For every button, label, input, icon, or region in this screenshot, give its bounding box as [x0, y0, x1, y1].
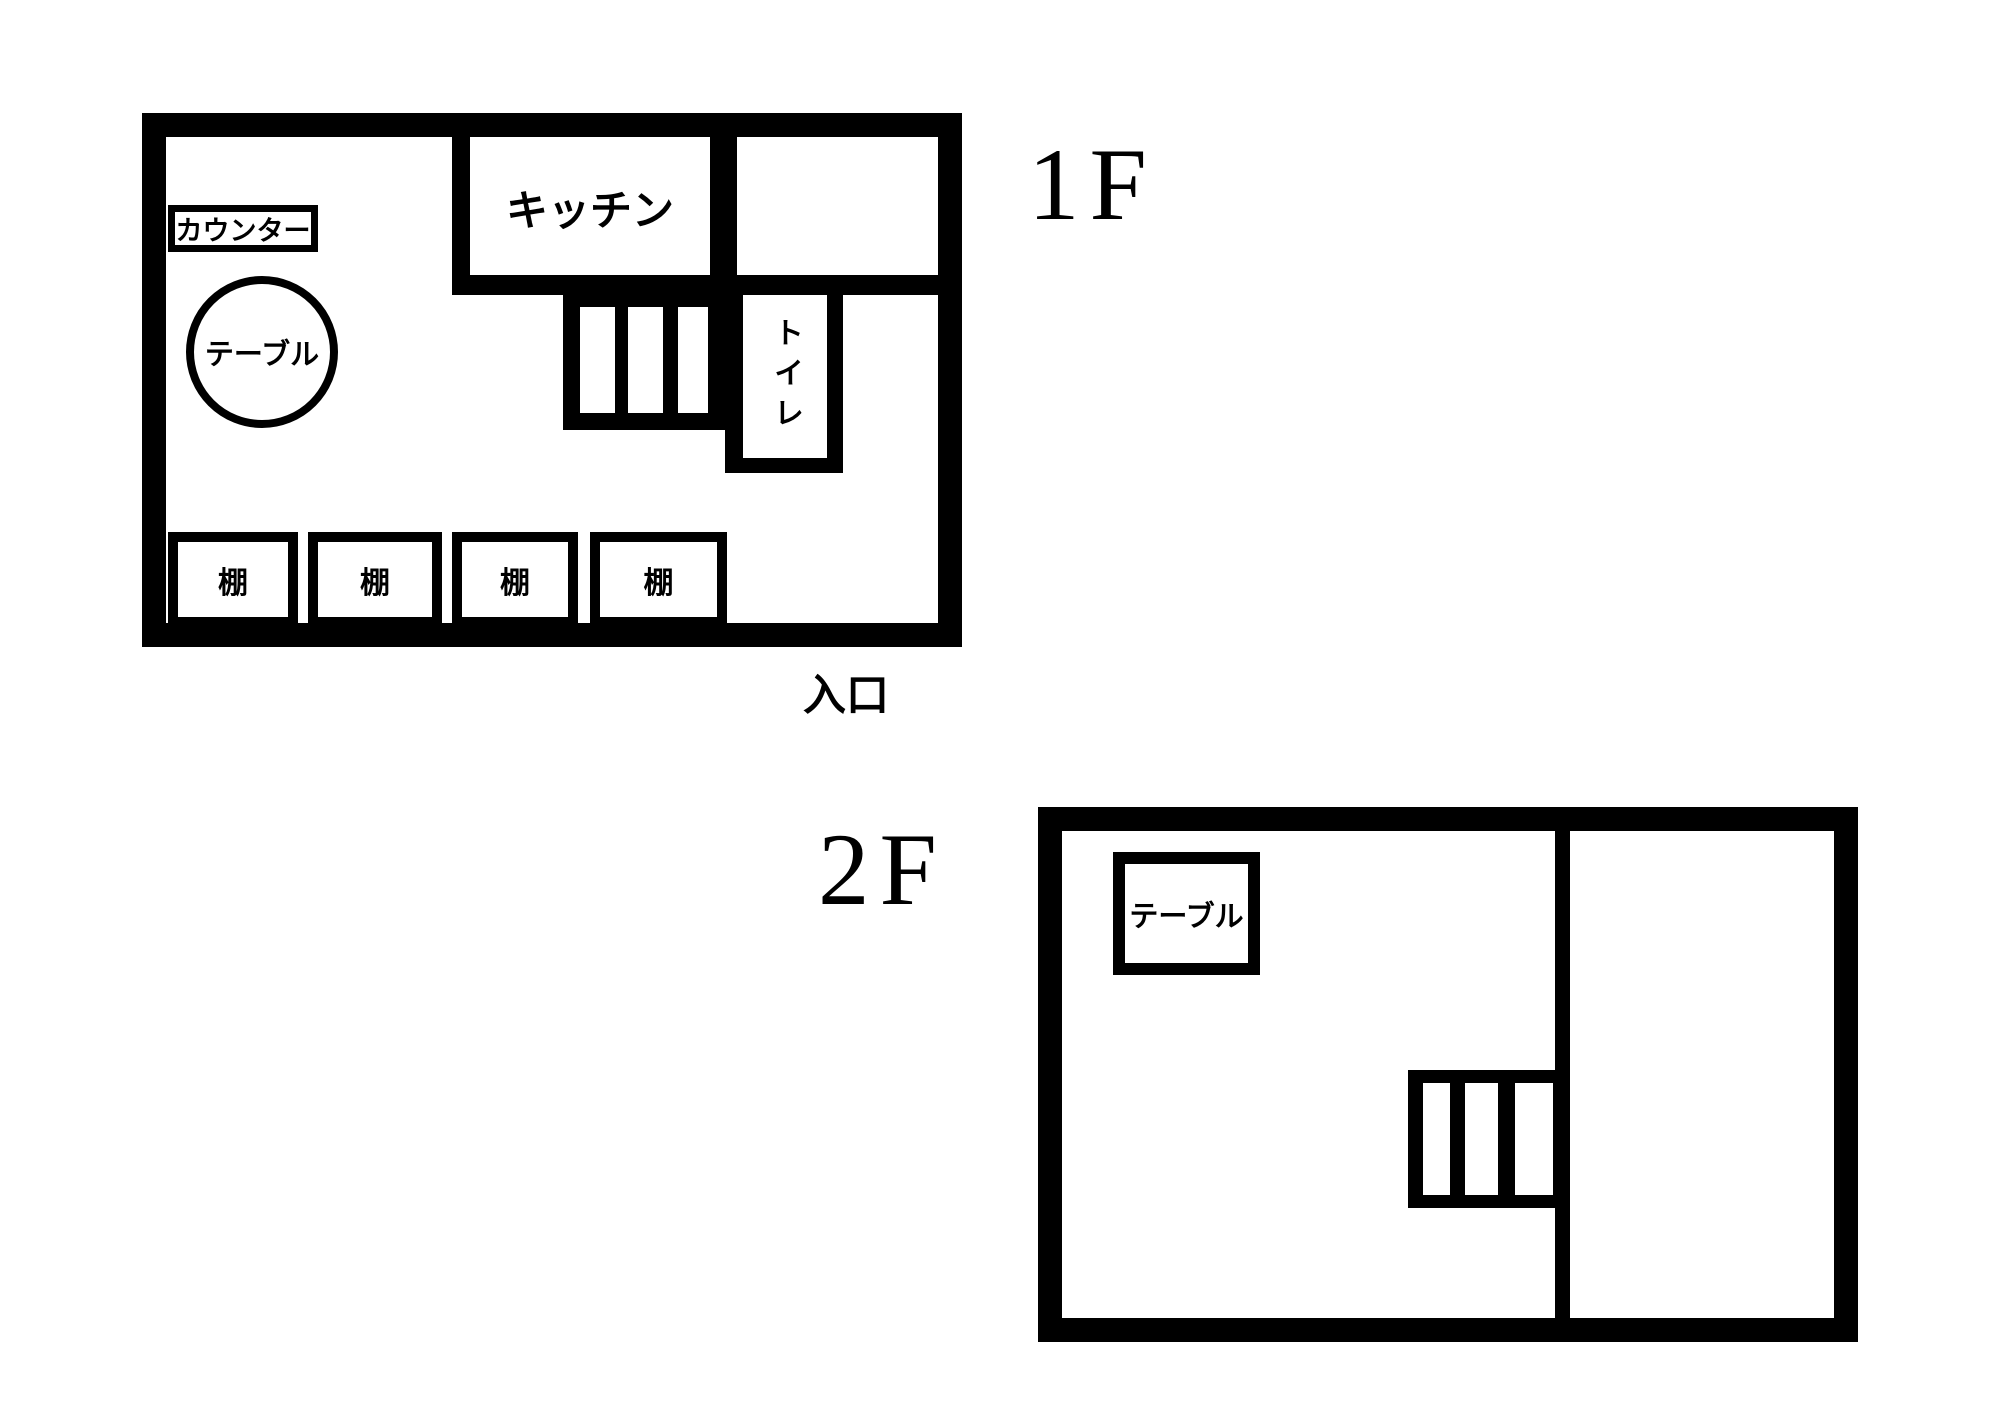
entrance-label: 入口 — [803, 672, 889, 720]
kitchen-right-wall — [710, 133, 737, 295]
toilet-interior: トイレ — [743, 295, 827, 458]
counter-label: カウンター — [176, 209, 311, 248]
table-circle-1f: テーブル — [186, 276, 338, 428]
stair-slot — [1465, 1083, 1498, 1195]
kitchen-room: キッチン — [470, 137, 710, 277]
stair-slot — [580, 307, 615, 413]
floorplan-canvas: キッチン カウンター テーブル トイレ 棚 棚 棚 棚 入口 1F — [0, 0, 2000, 1414]
table-label-1f: テーブル — [205, 331, 319, 373]
shelf-box-2: 棚 — [308, 532, 442, 627]
stair-slot — [628, 307, 663, 413]
shelf-box-3: 棚 — [452, 532, 578, 627]
stair-slot — [1423, 1083, 1450, 1195]
stairs-1f — [563, 280, 725, 430]
table-box-2f: テーブル — [1113, 852, 1260, 975]
entrance-label-wrap: 入口 — [790, 661, 902, 723]
counter-box: カウンター — [168, 205, 318, 252]
stair-slot — [1515, 1083, 1553, 1195]
shelf-box-1: 棚 — [168, 532, 298, 627]
kitchen-label: キッチン — [506, 177, 674, 238]
shelf-label: 棚 — [218, 558, 248, 602]
floor1-title: 1F — [1028, 134, 1157, 237]
toilet-label: トイレ — [763, 317, 807, 437]
shelf-box-4: 棚 — [590, 532, 727, 627]
kitchen-left-wall — [452, 133, 470, 295]
toilet-room: トイレ — [725, 275, 843, 473]
stair-slot — [678, 307, 708, 413]
floor2-title: 2F — [818, 819, 947, 922]
table-label-2f: テーブル — [1129, 893, 1243, 935]
shelf-label: 棚 — [500, 558, 530, 602]
stairs-2f — [1408, 1070, 1570, 1208]
shelf-label: 棚 — [644, 558, 674, 602]
shelf-label: 棚 — [360, 558, 390, 602]
